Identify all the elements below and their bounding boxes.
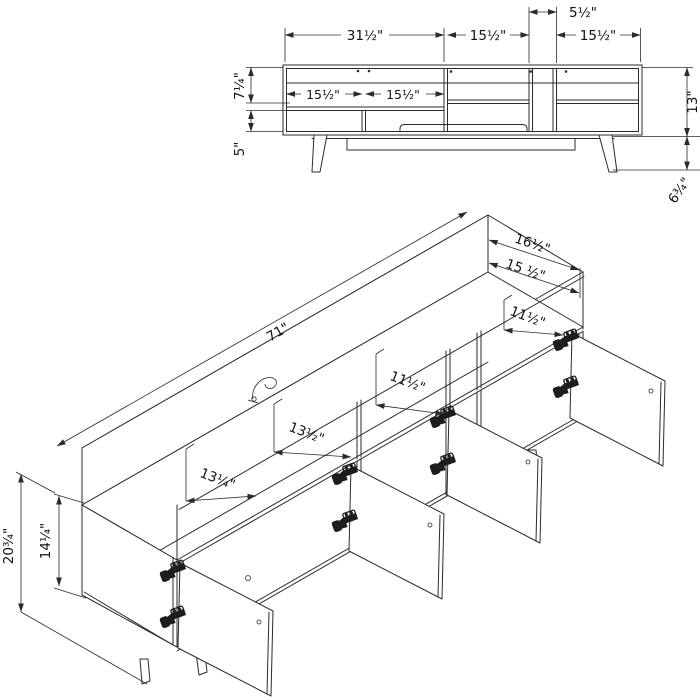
door-4 bbox=[570, 333, 665, 466]
dim-span-left: 31½" bbox=[347, 28, 383, 44]
isometric-view: 71" 16½" 15 ½" 11½" 11½" 13½" 13¼" bbox=[1, 212, 665, 696]
dim-leg-height: 6¾" bbox=[665, 175, 694, 207]
door-2 bbox=[349, 466, 444, 599]
dim-lower-height: 5" bbox=[232, 142, 248, 157]
blueprint-page: 5½" 31½" 15½" 15½" 15½" 15½" bbox=[0, 0, 700, 700]
dim-total-height-iso: 20¾" bbox=[1, 528, 17, 564]
dim-upper-height: 7¼" bbox=[232, 72, 248, 100]
door-3 bbox=[447, 410, 542, 543]
dim-inner-right: 15½" bbox=[386, 87, 420, 102]
front-cabinet-outline bbox=[283, 65, 642, 172]
front-dimensions: 5½" 31½" 15½" 15½" 15½" 15½" bbox=[232, 5, 700, 207]
iso-leg-back-left bbox=[140, 659, 150, 684]
dim-span-mid: 15½" bbox=[470, 28, 506, 44]
front-left-leg bbox=[312, 135, 327, 172]
front-elevation-view: 5½" 31½" 15½" 15½" 15½" 15½" bbox=[232, 5, 700, 207]
dim-center-gap: 5½" bbox=[569, 5, 597, 21]
dim-total-height: 13" bbox=[685, 90, 700, 113]
tv-stand-diagram: 5½" 31½" 15½" 15½" 15½" 15½" bbox=[0, 0, 700, 700]
door-1 bbox=[178, 563, 273, 696]
media-tray-outline bbox=[400, 125, 527, 132]
dim-inner-left: 15½" bbox=[306, 87, 340, 102]
dim-span-right: 15½" bbox=[580, 28, 616, 44]
dim-side-height: 14¼" bbox=[38, 523, 54, 559]
front-right-leg bbox=[599, 135, 617, 172]
